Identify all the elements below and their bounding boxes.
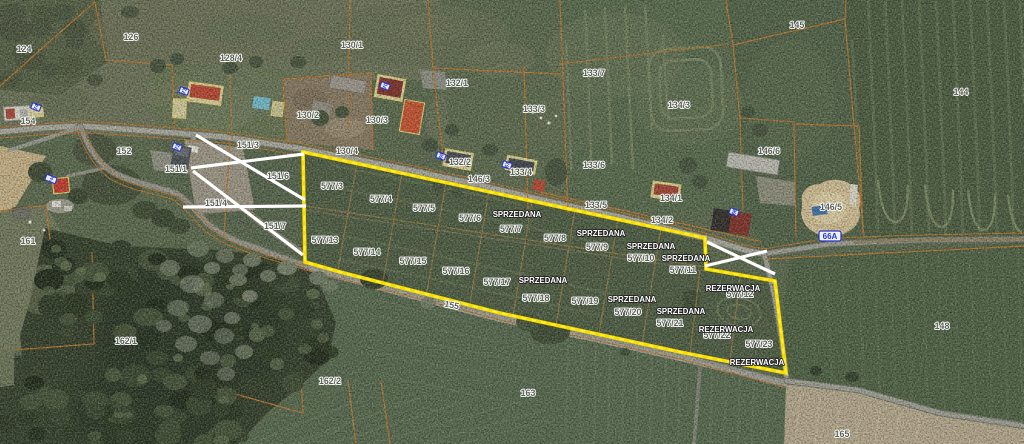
svg-text:577/19: 577/19 [572,296,599,306]
svg-text:162/1: 162/1 [115,336,137,346]
svg-text:163: 163 [521,388,536,398]
svg-text:151/3: 151/3 [237,140,259,150]
svg-text:577/8: 577/8 [544,233,566,243]
svg-text:130/2: 130/2 [297,110,319,120]
svg-text:134/2: 134/2 [651,215,673,225]
svg-text:145: 145 [790,20,805,30]
svg-text:577/14: 577/14 [354,247,381,257]
svg-text:133/7: 133/7 [583,68,605,78]
svg-text:577/10: 577/10 [628,253,655,263]
svg-text:SPRZEDANA: SPRZEDANA [662,254,711,263]
svg-text:132/2: 132/2 [449,157,471,167]
svg-text:161: 161 [21,236,36,246]
svg-text:SPRZEDANA: SPRZEDANA [493,210,542,219]
svg-text:134/3: 134/3 [668,100,690,110]
svg-text:133/3: 133/3 [523,104,545,114]
svg-text:SPRZEDANA: SPRZEDANA [577,229,626,238]
svg-text:577/13: 577/13 [312,235,339,245]
svg-text:124: 124 [17,44,32,54]
svg-text:154: 154 [21,116,36,126]
svg-text:146/3: 146/3 [468,174,490,184]
svg-text:577/18: 577/18 [523,293,550,303]
svg-text:133/4: 133/4 [510,167,532,177]
svg-text:130/3: 130/3 [366,115,388,125]
svg-text:165: 165 [835,429,850,439]
svg-text:577/15: 577/15 [400,256,427,266]
svg-text:162/2: 162/2 [319,376,341,386]
svg-text:577/4: 577/4 [370,194,392,204]
svg-text:REZERWACJA: REZERWACJA [706,284,761,293]
svg-text:577/6: 577/6 [459,213,481,223]
svg-text:152: 152 [117,146,132,156]
svg-text:146/6: 146/6 [758,146,780,156]
svg-text:66A: 66A [823,232,838,241]
svg-text:133/5: 133/5 [585,200,607,210]
svg-text:577/20: 577/20 [615,307,642,317]
svg-text:577/9: 577/9 [586,242,608,252]
svg-text:126: 126 [124,32,139,42]
svg-text:SPRZEDANA: SPRZEDANA [627,242,676,251]
svg-text:134/1: 134/1 [660,193,682,203]
svg-text:144: 144 [954,87,969,97]
svg-text:577/16: 577/16 [443,266,470,276]
svg-text:151/4: 151/4 [205,198,227,208]
svg-text:133/6: 133/6 [583,160,605,170]
svg-text:146/5: 146/5 [820,202,842,212]
svg-text:577/3: 577/3 [321,181,343,191]
svg-text:SPRZEDANA: SPRZEDANA [657,307,706,316]
svg-text:148: 148 [935,321,950,331]
svg-text:128/4: 128/4 [220,53,242,63]
svg-text:SPRZEDANA: SPRZEDANA [608,295,657,304]
svg-text:577/23: 577/23 [746,339,773,349]
svg-text:577/21: 577/21 [657,318,684,328]
svg-text:151/7: 151/7 [264,221,286,231]
svg-text:SPRZEDANA: SPRZEDANA [519,276,568,285]
svg-text:130/1: 130/1 [341,40,363,50]
svg-text:REZERWACJA: REZERWACJA [699,325,754,334]
svg-text:577/5: 577/5 [413,203,435,213]
svg-text:130/4: 130/4 [336,146,358,156]
svg-text:577/17: 577/17 [484,277,511,287]
svg-text:577/7: 577/7 [500,224,522,234]
svg-text:151/6: 151/6 [267,171,289,181]
svg-text:REZERWACJA: REZERWACJA [730,358,785,367]
svg-text:577/11: 577/11 [670,265,697,275]
svg-text:151/1: 151/1 [165,164,187,174]
svg-text:132/1: 132/1 [446,78,468,88]
